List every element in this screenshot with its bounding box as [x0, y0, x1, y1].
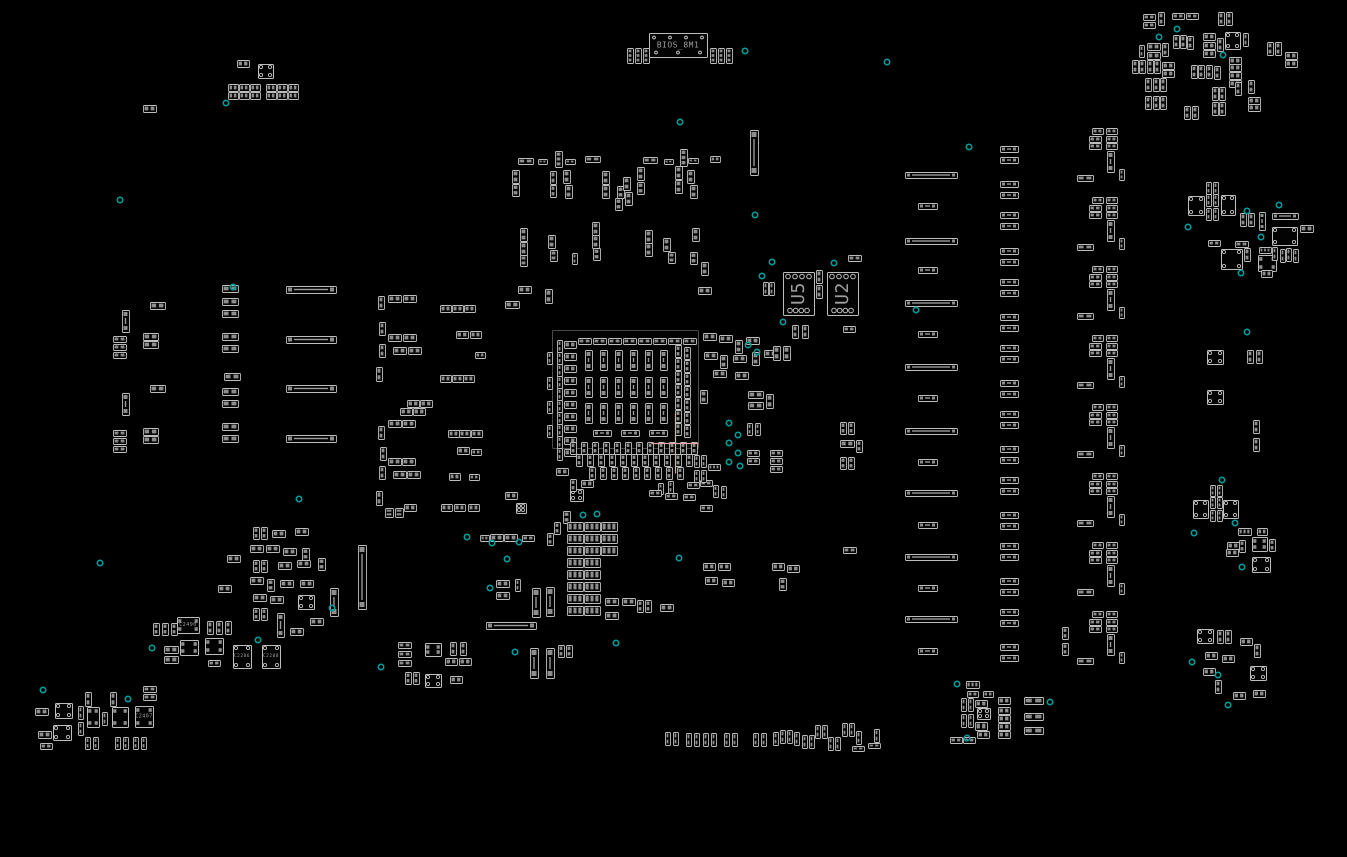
smd-component[interactable]: [969, 715, 974, 728]
smd-component[interactable]: [604, 443, 610, 455]
smd-component[interactable]: [380, 323, 386, 336]
smd-component[interactable]: [844, 327, 856, 333]
smd-component[interactable]: [919, 268, 938, 274]
smd-component[interactable]: [1078, 176, 1094, 182]
smd-component[interactable]: [661, 351, 668, 371]
smd-component[interactable]: [481, 536, 490, 542]
smd-component[interactable]: [714, 371, 727, 378]
smd-component[interactable]: [559, 646, 565, 658]
smd-component[interactable]: [685, 361, 691, 373]
smd-component[interactable]: [564, 512, 571, 524]
smd-component[interactable]: [1120, 239, 1125, 250]
smd-component[interactable]: [1254, 421, 1260, 434]
smd-component[interactable]: [1001, 357, 1019, 363]
smd-component[interactable]: [564, 171, 571, 184]
smd-component[interactable]: [568, 535, 584, 544]
ic[interactable]: [1208, 391, 1224, 405]
smd-component[interactable]: [1090, 213, 1102, 219]
smd-component[interactable]: [458, 448, 470, 455]
smd-component[interactable]: [1093, 198, 1104, 204]
smd-component[interactable]: [695, 734, 700, 747]
smd-component[interactable]: [594, 339, 607, 345]
smd-component[interactable]: [303, 549, 310, 561]
smd-component[interactable]: [565, 366, 577, 373]
smd-component[interactable]: [1227, 13, 1233, 26]
smd-component[interactable]: [114, 337, 127, 343]
smd-component[interactable]: [711, 49, 717, 64]
smd-component[interactable]: [291, 629, 304, 636]
smd-component[interactable]: [906, 555, 958, 561]
smd-component[interactable]: [1241, 214, 1247, 227]
smd-component[interactable]: [144, 334, 159, 341]
smd-component[interactable]: [646, 351, 653, 371]
smd-component[interactable]: [142, 738, 147, 750]
smd-component[interactable]: [612, 468, 618, 480]
smd-component[interactable]: [1001, 610, 1019, 616]
smd-component[interactable]: [460, 431, 471, 438]
smd-component[interactable]: [1133, 61, 1139, 74]
smd-component[interactable]: [565, 354, 577, 361]
smd-component[interactable]: [548, 534, 554, 546]
smd-component[interactable]: [461, 643, 467, 656]
smd-component[interactable]: [602, 535, 618, 544]
smd-component[interactable]: [646, 378, 653, 398]
smd-component[interactable]: [674, 733, 679, 746]
smd-component[interactable]: [1258, 529, 1268, 536]
smd-component[interactable]: [585, 547, 601, 556]
smd-component[interactable]: [1107, 275, 1118, 281]
smd-component[interactable]: [624, 339, 637, 345]
smd-component[interactable]: [414, 409, 426, 416]
smd-component[interactable]: [691, 186, 698, 199]
smd-component[interactable]: [1078, 314, 1094, 320]
smd-component[interactable]: [298, 561, 311, 568]
smd-component[interactable]: [1236, 242, 1249, 248]
smd-component[interactable]: [116, 738, 121, 750]
smd-component[interactable]: [1254, 691, 1266, 698]
smd-component[interactable]: [841, 458, 847, 470]
smd-component[interactable]: [919, 396, 938, 402]
smd-component[interactable]: [566, 186, 573, 199]
smd-component[interactable]: [773, 564, 785, 571]
smd-component[interactable]: [506, 302, 520, 309]
smd-component[interactable]: [1249, 81, 1255, 94]
smd-component[interactable]: [684, 339, 697, 345]
smd-component[interactable]: [1144, 23, 1156, 29]
smd-component[interactable]: [399, 652, 412, 658]
smd-component[interactable]: [114, 431, 127, 437]
smd-component[interactable]: [906, 301, 958, 307]
smd-component[interactable]: [219, 586, 232, 593]
smd-component[interactable]: [875, 730, 880, 743]
smd-component[interactable]: [568, 547, 584, 556]
smd-component[interactable]: [284, 549, 297, 556]
ic-c2407[interactable]: C2407: [135, 707, 153, 728]
smd-component[interactable]: [1001, 489, 1019, 495]
smd-component[interactable]: [774, 347, 781, 361]
smd-component[interactable]: [1245, 249, 1251, 262]
smd-component[interactable]: [565, 342, 577, 349]
smd-component[interactable]: [810, 736, 815, 749]
smd-component[interactable]: [857, 441, 863, 453]
smd-component[interactable]: [380, 345, 386, 358]
smd-component[interactable]: [719, 564, 731, 571]
ic[interactable]: [54, 726, 72, 741]
smd-component[interactable]: [585, 535, 601, 544]
smd-component[interactable]: [667, 468, 673, 480]
smd-component[interactable]: [691, 253, 698, 265]
smd-component[interactable]: [603, 186, 610, 199]
ic-bios_8m1[interactable]: BIOS_8M1: [650, 34, 708, 58]
smd-component[interactable]: [919, 649, 938, 655]
smd-component[interactable]: [1218, 631, 1224, 644]
smd-component[interactable]: [172, 624, 178, 636]
smd-component[interactable]: [1211, 486, 1216, 497]
smd-component[interactable]: [1090, 144, 1102, 150]
smd-component[interactable]: [558, 353, 563, 365]
smd-component[interactable]: [1093, 543, 1104, 549]
smd-component[interactable]: [568, 595, 584, 604]
smd-component[interactable]: [567, 646, 573, 658]
smd-component[interactable]: [223, 401, 239, 408]
smd-component[interactable]: [1108, 152, 1115, 173]
smd-component[interactable]: [470, 475, 480, 481]
smd-component[interactable]: [521, 243, 528, 256]
smd-component[interactable]: [784, 347, 791, 361]
smd-component[interactable]: [1148, 44, 1161, 51]
smd-component[interactable]: [586, 157, 601, 163]
smd-component[interactable]: [165, 647, 179, 654]
smd-component[interactable]: [86, 693, 92, 707]
smd-component[interactable]: [403, 459, 416, 466]
smd-component[interactable]: [556, 152, 563, 168]
smd-component[interactable]: [379, 297, 385, 310]
smd-component[interactable]: [645, 468, 651, 480]
smd-component[interactable]: [123, 311, 130, 333]
smd-component[interactable]: [999, 716, 1011, 723]
smd-component[interactable]: [446, 659, 458, 666]
smd-component[interactable]: [1260, 213, 1266, 231]
smd-component[interactable]: [568, 583, 584, 592]
smd-component[interactable]: [1140, 61, 1146, 74]
smd-component[interactable]: [631, 378, 638, 398]
smd-component[interactable]: [124, 738, 129, 750]
smd-component[interactable]: [389, 421, 402, 428]
ic[interactable]: [259, 65, 274, 79]
smd-component[interactable]: [209, 661, 221, 667]
smd-component[interactable]: [421, 401, 433, 408]
smd-component[interactable]: [999, 724, 1011, 731]
smd-component[interactable]: [906, 173, 958, 179]
smd-component[interactable]: [573, 254, 578, 265]
smd-component[interactable]: [695, 471, 700, 483]
smd-component[interactable]: [1281, 250, 1286, 263]
smd-component[interactable]: [404, 335, 417, 342]
smd-component[interactable]: [699, 288, 712, 295]
smd-component[interactable]: [1001, 346, 1019, 352]
smd-component[interactable]: [539, 160, 548, 165]
smd-component[interactable]: [408, 472, 421, 479]
ic[interactable]: [1222, 196, 1236, 216]
smd-component[interactable]: [1107, 620, 1118, 626]
smd-component[interactable]: [165, 657, 179, 664]
smd-component[interactable]: [836, 738, 841, 751]
smd-component[interactable]: [631, 351, 638, 371]
smd-component[interactable]: [1107, 482, 1118, 488]
smd-component[interactable]: [223, 311, 239, 318]
smd-component[interactable]: [1078, 590, 1094, 596]
smd-component[interactable]: [401, 409, 413, 416]
smd-component[interactable]: [702, 456, 707, 468]
smd-component[interactable]: [1192, 66, 1198, 79]
smd-component[interactable]: [409, 348, 422, 355]
smd-component[interactable]: [1001, 524, 1019, 530]
smd-component[interactable]: [1090, 137, 1102, 143]
smd-component[interactable]: [1001, 478, 1019, 484]
smd-component[interactable]: [289, 93, 299, 100]
smd-component[interactable]: [240, 93, 250, 100]
smd-component[interactable]: [1140, 46, 1145, 58]
smd-component[interactable]: [720, 336, 733, 343]
smd-component[interactable]: [229, 93, 239, 100]
smd-component[interactable]: [747, 338, 760, 345]
smd-component[interactable]: [681, 443, 687, 455]
smd-component[interactable]: [850, 724, 855, 737]
smd-component[interactable]: [1249, 98, 1261, 105]
smd-component[interactable]: [688, 171, 695, 184]
smd-component[interactable]: [585, 559, 601, 568]
smd-component[interactable]: [1107, 282, 1118, 288]
smd-component[interactable]: [1107, 627, 1118, 633]
smd-component[interactable]: [999, 698, 1011, 705]
smd-component[interactable]: [1107, 144, 1118, 150]
smd-component[interactable]: [1286, 53, 1298, 60]
smd-component[interactable]: [1001, 412, 1019, 418]
smd-component[interactable]: [1163, 44, 1169, 57]
smd-component[interactable]: [551, 172, 557, 185]
ic[interactable]: [1224, 501, 1239, 519]
smd-component[interactable]: [513, 171, 520, 184]
smd-component[interactable]: [254, 609, 260, 621]
ic[interactable]: [1194, 501, 1209, 519]
smd-component[interactable]: [676, 346, 682, 358]
smd-component[interactable]: [223, 299, 239, 306]
smd-component[interactable]: [111, 693, 117, 707]
smd-component[interactable]: [568, 523, 584, 532]
smd-component[interactable]: [626, 443, 632, 455]
smd-component[interactable]: [962, 715, 967, 728]
smd-component[interactable]: [1273, 214, 1299, 220]
ic[interactable]: [56, 704, 73, 719]
smd-component[interactable]: [79, 723, 84, 736]
smd-component[interactable]: [906, 617, 958, 623]
smd-component[interactable]: [1093, 474, 1104, 480]
smd-component[interactable]: [229, 85, 239, 92]
smd-component[interactable]: [441, 306, 452, 313]
smd-component[interactable]: [906, 365, 958, 371]
smd-component[interactable]: [1174, 36, 1180, 49]
smd-component[interactable]: [1248, 351, 1254, 364]
smd-component[interactable]: [1239, 529, 1252, 536]
smd-component[interactable]: [1148, 61, 1154, 74]
smd-component[interactable]: [733, 734, 738, 747]
smd-component[interactable]: [636, 49, 642, 64]
smd-component[interactable]: [287, 436, 337, 443]
smd-component[interactable]: [565, 378, 577, 385]
smd-component[interactable]: [1161, 97, 1167, 110]
smd-component[interactable]: [497, 581, 510, 588]
smd-component[interactable]: [441, 376, 452, 383]
smd-component[interactable]: [557, 469, 569, 476]
smd-component[interactable]: [406, 673, 412, 685]
smd-component[interactable]: [1108, 221, 1115, 242]
smd-component[interactable]: [676, 398, 682, 410]
smd-component[interactable]: [377, 368, 383, 382]
smd-component[interactable]: [1001, 291, 1019, 297]
smd-component[interactable]: [666, 733, 671, 746]
smd-component[interactable]: [1001, 280, 1019, 286]
smd-component[interactable]: [389, 296, 402, 303]
smd-component[interactable]: [551, 251, 558, 262]
smd-component[interactable]: [770, 283, 775, 296]
smd-component[interactable]: [594, 431, 612, 437]
smd-component[interactable]: [497, 593, 510, 600]
smd-component[interactable]: [849, 256, 862, 262]
smd-component[interactable]: [1120, 653, 1125, 664]
smd-component[interactable]: [1107, 351, 1118, 357]
smd-component[interactable]: [712, 734, 717, 747]
smd-component[interactable]: [223, 436, 239, 443]
smd-component[interactable]: [114, 345, 127, 351]
smd-component[interactable]: [1107, 612, 1118, 618]
smd-component[interactable]: [1107, 267, 1118, 273]
smd-component[interactable]: [114, 353, 127, 359]
smd-component[interactable]: [906, 429, 958, 435]
smd-component[interactable]: [404, 296, 417, 303]
ic[interactable]: [1226, 33, 1241, 50]
smd-component[interactable]: [399, 661, 412, 667]
smd-component[interactable]: [676, 424, 682, 436]
smd-component[interactable]: [654, 339, 667, 345]
smd-component[interactable]: [469, 505, 480, 512]
smd-component[interactable]: [1204, 34, 1216, 41]
smd-component[interactable]: [1001, 458, 1019, 464]
smd-component[interactable]: [547, 649, 555, 679]
smd-component[interactable]: [1078, 521, 1094, 527]
smd-component[interactable]: [287, 337, 337, 344]
smd-component[interactable]: [1241, 639, 1253, 646]
smd-component[interactable]: [506, 493, 518, 500]
smd-component[interactable]: [1218, 498, 1223, 509]
smd-component[interactable]: [754, 734, 759, 747]
smd-component[interactable]: [616, 404, 623, 424]
smd-component[interactable]: [1193, 107, 1199, 120]
smd-component[interactable]: [676, 455, 682, 467]
smd-component[interactable]: [144, 106, 157, 113]
smd-component[interactable]: [643, 455, 649, 467]
smd-component[interactable]: [609, 339, 622, 345]
smd-component[interactable]: [1218, 511, 1223, 522]
ic-c2206[interactable]: C2206: [234, 646, 252, 669]
smd-component[interactable]: [476, 353, 486, 359]
smd-component[interactable]: [1090, 551, 1102, 557]
smd-component[interactable]: [533, 589, 541, 618]
smd-component[interactable]: [1227, 550, 1239, 557]
smd-component[interactable]: [262, 561, 268, 573]
smd-component[interactable]: [1161, 79, 1167, 92]
smd-component[interactable]: [1090, 627, 1102, 633]
smd-component[interactable]: [793, 326, 799, 339]
smd-component[interactable]: [359, 546, 367, 610]
smd-component[interactable]: [1207, 195, 1212, 207]
smd-component[interactable]: [919, 332, 938, 338]
smd-component[interactable]: [646, 231, 653, 244]
smd-component[interactable]: [262, 609, 268, 621]
smd-component[interactable]: [1090, 206, 1102, 212]
smd-component[interactable]: [616, 351, 623, 371]
smd-component[interactable]: [558, 377, 563, 389]
smd-component[interactable]: [650, 491, 662, 497]
smd-component[interactable]: [702, 471, 707, 483]
smd-component[interactable]: [1107, 489, 1118, 495]
smd-component[interactable]: [558, 341, 563, 353]
smd-component[interactable]: [1078, 383, 1094, 389]
smd-component[interactable]: [781, 731, 786, 744]
smd-component[interactable]: [1001, 447, 1019, 453]
smd-component[interactable]: [558, 413, 563, 425]
smd-component[interactable]: [704, 564, 716, 571]
smd-component[interactable]: [254, 561, 260, 573]
smd-component[interactable]: [1276, 43, 1282, 56]
smd-component[interactable]: [1215, 67, 1221, 80]
smd-component[interactable]: [1120, 170, 1125, 181]
smd-component[interactable]: [623, 468, 629, 480]
smd-component[interactable]: [978, 732, 990, 739]
smd-component[interactable]: [685, 400, 691, 412]
smd-component[interactable]: [702, 263, 709, 276]
smd-component[interactable]: [1093, 129, 1104, 135]
smd-component[interactable]: [548, 426, 553, 438]
smd-component[interactable]: [665, 455, 671, 467]
smd-component[interactable]: [632, 455, 638, 467]
smd-component[interactable]: [226, 622, 232, 635]
smd-component[interactable]: [919, 523, 938, 529]
smd-component[interactable]: [254, 528, 260, 540]
smd-component[interactable]: [722, 487, 727, 499]
smd-component[interactable]: [548, 402, 553, 414]
smd-component[interactable]: [1120, 584, 1125, 595]
smd-component[interactable]: [379, 427, 385, 440]
smd-component[interactable]: [1173, 14, 1185, 20]
smd-component[interactable]: [521, 229, 528, 242]
smd-component[interactable]: [1188, 37, 1194, 50]
smd-component[interactable]: [849, 458, 855, 470]
smd-component[interactable]: [228, 556, 241, 563]
smd-component[interactable]: [1214, 209, 1219, 221]
smd-component[interactable]: [616, 199, 623, 211]
smd-component[interactable]: [1107, 543, 1118, 549]
smd-component[interactable]: [566, 160, 576, 165]
smd-component[interactable]: [602, 523, 618, 532]
ic-c2490[interactable]: C2490: [178, 618, 200, 634]
smd-component[interactable]: [582, 443, 588, 455]
smd-component[interactable]: [1001, 381, 1019, 387]
smd-component[interactable]: [969, 699, 974, 712]
smd-component[interactable]: [1249, 105, 1261, 112]
smd-component[interactable]: [1286, 61, 1298, 68]
smd-component[interactable]: [565, 402, 577, 409]
smd-component[interactable]: [1107, 206, 1118, 212]
